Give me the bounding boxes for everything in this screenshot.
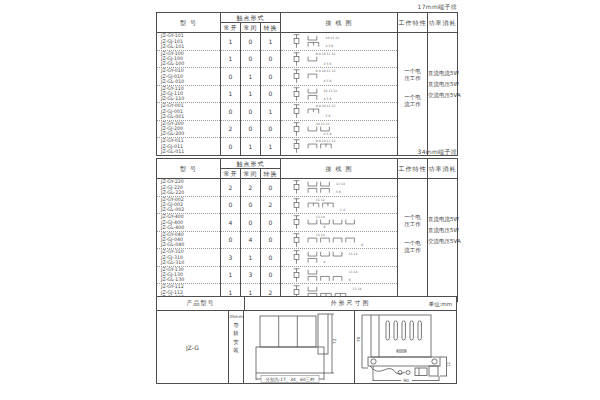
no-contact-symbol	[333, 220, 342, 224]
no-contact-header: 常开	[221, 169, 241, 179]
wiring-diagram-cell: 10 11 124 5 6	[281, 120, 398, 138]
no-contact-symbol	[308, 269, 317, 273]
co-contact-symbol	[308, 109, 319, 113]
wiring-diagram-cell: 10 11 124 5 6	[281, 33, 398, 51]
no-count-cell: 3	[221, 249, 241, 267]
no-contact-symbol	[321, 220, 330, 224]
model-numbers-cell: JZ-GY-040JZ-GJ-040JZ-GL-040	[157, 231, 221, 249]
nc-contact-symbol	[346, 238, 355, 242]
product-model-value: JZ-G	[157, 311, 229, 384]
model-number: JZ-GL-040	[157, 242, 220, 247]
model-column-header: 型 号	[157, 13, 221, 33]
no-contact-symbol	[333, 252, 342, 256]
pin-numbers-top: 13 14	[316, 216, 325, 220]
power-consumption-header: 功率消耗	[428, 159, 458, 179]
coil-symbol	[294, 109, 299, 114]
model-numbers-cell: JZ-GY-130JZ-GJ-130JZ-GL-130	[157, 266, 221, 284]
pin-numbers-top: 8 9 10 11 12	[316, 52, 336, 56]
wiring-diagram-svg: 13 146	[283, 214, 395, 230]
contact-form-header: 触点形式	[221, 159, 281, 169]
screw-hole	[371, 359, 376, 364]
label-slot	[397, 350, 406, 352]
model-numbers-cell: JZ-GY-400JZ-GJ-400JZ-GL-400	[157, 214, 221, 232]
nc-count-cell: 0	[241, 196, 261, 214]
pin-numbers-bottom: 4 5 6	[324, 132, 332, 136]
co-count-cell: 0	[261, 249, 281, 267]
power-line: 直流电流5W	[428, 70, 457, 76]
rail-mount-char: 装	[233, 347, 239, 353]
no-contact-symbol	[321, 126, 330, 130]
work-group-line: 压工作	[398, 75, 427, 82]
no-count-cell: 0	[221, 231, 241, 249]
wiring-diagram-svg: 13 146	[283, 249, 395, 265]
pin-numbers-top: 8 9 10 11 12	[316, 70, 336, 74]
pin-numbers-top: 10 11 12	[326, 36, 340, 40]
model-number: JZ-GL-101	[157, 44, 220, 49]
model-number: JZ-GL-220	[157, 190, 220, 195]
model-numbers-cell: JZ-GY-110JZ-GJ-110JZ-GL-110	[157, 85, 221, 103]
coil-symbol	[294, 185, 299, 190]
wiring-diagram-cell: 13 146	[281, 214, 398, 232]
no-contact-symbol	[321, 182, 330, 186]
working-characteristic-header: 工作特性	[398, 159, 428, 179]
model-numbers-cell: JZ-GY-310JZ-GJ-310JZ-GL-310	[157, 249, 221, 267]
working-characteristic-text: 一个电压工作一个电流工作	[398, 214, 427, 253]
work-group: 一个电流工作	[398, 240, 427, 253]
nc-contact-symbol	[308, 238, 317, 242]
wiring-diagram-svg: 10 11 124 5 6	[283, 121, 395, 137]
pin-numbers-bottom: 6	[349, 278, 351, 282]
no-contact-symbol	[308, 220, 317, 224]
nc-count-cell: 0	[241, 103, 261, 121]
rail-mount-char: 导	[233, 322, 239, 328]
model-column-header: 型 号	[157, 159, 221, 179]
no-count-cell: 0	[221, 196, 241, 214]
model-numbers-cell: JZ-GY-010JZ-GJ-010JZ-GL-010	[157, 68, 221, 86]
wiring-diagram-header: 接 线 图	[281, 13, 398, 33]
side-height-dim-label: 70	[356, 336, 361, 342]
co-contact-symbol	[308, 203, 319, 207]
coil-symbol	[294, 202, 299, 207]
co-count-cell: 0	[261, 85, 281, 103]
model-numbers-cell: JZ-GY-220JZ-GJ-220JZ-GL-220	[157, 179, 221, 197]
wiring-diagram-cell: 13 146	[281, 231, 398, 249]
terminal-block-side	[318, 314, 328, 354]
no-count-cell: 1	[221, 266, 241, 284]
nc-count-cell: 1	[241, 249, 261, 267]
contact-form-header: 触点形式	[221, 13, 281, 23]
front-view-drawing: 72 分别为:17、34、60三种	[244, 311, 354, 384]
pin-numbers-top: 13 14	[349, 270, 358, 274]
wiring-diagram-svg: 10 11 124 5 6	[283, 86, 395, 102]
pin-numbers-bottom: 4 5 6	[324, 79, 332, 83]
model-number: JZ-GL-200	[157, 131, 220, 136]
co-count-cell: 2	[261, 196, 281, 214]
model-number: JZ-GL-002	[157, 207, 220, 212]
pin-numbers-bottom: 6	[324, 225, 326, 229]
co-count-cell: 0	[261, 120, 281, 138]
outline-table-header: 产品型号 外形尺寸图 单位:mm	[157, 297, 456, 311]
rail-mount-note: 35mm 导 轨 安 装	[229, 311, 244, 384]
co-contact-header: 转换	[261, 169, 281, 179]
model-number: JZ-GL-400	[157, 225, 220, 230]
power-line: 直流电压5W	[428, 81, 457, 87]
power-consumption-cell: 直流电流5W直流电压5W交流电压5VA	[428, 179, 458, 302]
wiring-diagram-cell: 13 146	[281, 266, 398, 284]
pin-numbers-bottom: 5 6	[336, 191, 341, 195]
no-count-cell: 0	[221, 103, 241, 121]
pin-numbers-top: 13 14	[316, 233, 325, 237]
coil-symbol	[294, 74, 299, 79]
work-group: 一个电流工作	[398, 94, 427, 107]
model-number: JZ-GL-130	[157, 277, 220, 282]
model-numbers-cell: JZ-GY-100JZ-GJ-100JZ-GL-100	[157, 50, 221, 68]
product-model-header: 产品型号	[157, 297, 245, 310]
model-number: JZ-GL-310	[157, 260, 220, 265]
nc-count-cell: 0	[241, 50, 261, 68]
co-count-cell: 0	[261, 214, 281, 232]
pin-numbers-top: 10 11 12	[316, 122, 330, 126]
co-count-cell: 0	[261, 68, 281, 86]
nc-count-cell: 4	[241, 231, 261, 249]
power-line: 直流电流5W	[428, 216, 457, 222]
working-characteristic-header: 工作特性	[398, 13, 428, 33]
pin-numbers-top: 13 14	[353, 287, 362, 291]
work-group-line: 流工作	[398, 101, 427, 108]
outline-dimension-table: 产品型号 外形尺寸图 单位:mm JZ-G 35mm 导 轨 安 装	[156, 296, 457, 384]
wiring-diagram-cell: 13 145 6	[281, 179, 398, 197]
rail-size-text: 35mm	[229, 314, 243, 319]
work-group: 一个电压工作	[398, 68, 427, 81]
dimension-drawing-header: 外形尺寸图 单位:mm	[245, 297, 456, 310]
nc-count-cell: 0	[241, 33, 261, 51]
pin-numbers-bottom: 4 5 6	[324, 62, 332, 66]
front-height-dim-label: 72	[332, 338, 337, 344]
co-count-cell: 0	[261, 231, 281, 249]
no-contact-symbol	[308, 56, 317, 60]
side-clip-dim-label: 12	[446, 361, 451, 367]
wiring-diagram-cell: 8 9 10 11 125 6	[281, 103, 398, 121]
pin-numbers-top: 8 9 10 11 12	[316, 105, 336, 109]
no-contact-symbol	[346, 220, 355, 224]
nc-contact-symbol	[321, 189, 330, 193]
nc-contact-symbol	[333, 238, 342, 242]
power-consumption-header: 功率消耗	[428, 13, 458, 33]
rail-mount-char: 轨	[233, 330, 239, 336]
wiring-diagram-svg: 8 9 10 11 125 6	[283, 103, 395, 119]
side-width-dim-label: 90	[403, 378, 409, 383]
nc-count-cell: 2	[241, 179, 261, 197]
nc-count-cell: 1	[241, 68, 261, 86]
model-number: JZ-GL-010	[157, 79, 220, 84]
wiring-diagram-svg: 13 146	[283, 232, 395, 248]
nc-contact-symbol	[333, 276, 342, 280]
work-group-line: 流工作	[398, 247, 427, 254]
spec-row: JZ-GY-101JZ-GJ-101JZ-GL-10110110 11 124 …	[157, 33, 458, 51]
relay-base-flange	[256, 347, 324, 373]
spec-table-17mm: 型 号触点形式接 线 图工作特性功率消耗常开常闭转换JZ-GY-101JZ-GJ…	[156, 12, 458, 156]
wiring-diagram-cell: 10 11 124 5 6	[281, 85, 398, 103]
wiring-diagram-cell: 13 146	[281, 249, 398, 267]
power-consumption-text: 直流电流5W直流电压5W交流电压5VA	[428, 70, 457, 98]
terminal-size-label-17mm: 17mm端子排	[156, 3, 457, 12]
screw-hole	[432, 359, 437, 364]
power-consumption-cell: 直流电流5W直流电压5W交流电压5VA	[428, 33, 458, 156]
nc-contact-symbol	[321, 276, 330, 280]
unit-label: 单位:mm	[428, 300, 452, 307]
working-characteristic-text: 一个电压工作一个电流工作	[398, 68, 427, 107]
work-group-line: 压工作	[398, 221, 427, 228]
no-count-cell: 2	[221, 120, 241, 138]
coil-symbol	[294, 237, 299, 242]
side-view-drawing: 70 90 12	[355, 311, 454, 384]
pin-numbers-bottom: 6	[361, 243, 363, 247]
co-count-cell: 0	[261, 50, 281, 68]
no-count-cell: 1	[221, 85, 241, 103]
base-bar	[368, 357, 440, 366]
pin-numbers-bottom: 6	[324, 261, 326, 265]
pin-numbers-bottom: 5 6	[326, 114, 331, 118]
nc-count-cell: 1	[241, 85, 261, 103]
no-count-cell: 4	[221, 214, 241, 232]
coil-symbol	[294, 220, 299, 225]
no-count-cell: 1	[221, 33, 241, 51]
terminal-size-label-34mm: 34mm端子排	[156, 148, 457, 157]
coil-symbol	[294, 39, 299, 44]
model-number: JZ-GL-110	[157, 96, 220, 101]
relay-side-housing	[371, 315, 431, 357]
work-group: 一个电压工作	[398, 214, 427, 227]
pin-numbers-top: 13 14	[349, 252, 358, 256]
wiring-diagram-cell: 11 121 4	[281, 196, 398, 214]
power-line: 交流电压5VA	[428, 238, 457, 244]
outline-table-body: JZ-G 35mm 导 轨 安 装	[157, 311, 456, 384]
co-contact-header: 转换	[261, 23, 281, 33]
power-consumption-text: 直流电流5W直流电压5W交流电压5VA	[428, 216, 457, 244]
pin-numbers-bottom: 4 5 6	[326, 45, 334, 49]
nc-contact-header: 常闭	[241, 169, 261, 179]
no-count-cell: 2	[221, 179, 241, 197]
no-contact-symbol	[321, 252, 330, 256]
coil-symbol	[294, 290, 299, 295]
din-rail-clip	[370, 366, 438, 376]
model-numbers-cell: JZ-GY-200JZ-GJ-200JZ-GL-200	[157, 120, 221, 138]
co-count-cell: 0	[261, 266, 281, 284]
no-contact-symbol	[308, 182, 317, 186]
dimension-drawing-title: 外形尺寸图	[331, 299, 371, 308]
pin-numbers-bottom: 1 4	[340, 208, 345, 212]
coil-symbol	[294, 56, 299, 61]
nc-contact-symbol	[308, 189, 317, 193]
nc-contact-header: 常闭	[241, 23, 261, 33]
model-number: JZ-GL-100	[157, 61, 220, 66]
wiring-diagram-svg: 10 11 124 5 6	[283, 33, 395, 49]
rail-mount-char: 安	[233, 339, 239, 345]
nc-contact-symbol	[321, 238, 330, 242]
wiring-diagram-cell: 8 9 10 11 124 5 6	[281, 68, 398, 86]
pin-numbers-top: 11 12	[316, 198, 325, 202]
co-contact-symbol	[323, 203, 334, 207]
wiring-diagram-svg: 8 9 10 11 124 5 6	[283, 51, 395, 67]
no-contact-header: 常开	[221, 23, 241, 33]
no-contact-symbol	[308, 252, 317, 256]
working-characteristic-cell: 一个电压工作一个电流工作	[398, 179, 428, 302]
pin-numbers-top: 10 11 12	[324, 89, 338, 93]
co-count-cell: 1	[261, 103, 281, 121]
model-numbers-cell: JZ-GY-101JZ-GJ-101JZ-GL-101	[157, 33, 221, 51]
no-contact-symbol	[308, 287, 317, 291]
co-contact-symbol	[308, 43, 319, 47]
spec-table-34mm: 型 号触点形式接 线 图工作特性功率消耗常开常闭转换JZ-GY-220JZ-GJ…	[156, 158, 458, 302]
power-line: 交流电压5VA	[428, 92, 457, 98]
nc-contact-symbol	[308, 95, 317, 99]
pin-numbers-bottom: 4 5 6	[324, 97, 332, 101]
pin-numbers-top: 8 9 10 11 12	[316, 140, 336, 144]
nc-count-cell: 3	[241, 266, 261, 284]
wiring-diagram-svg: 13 146	[283, 267, 395, 283]
coil-symbol	[294, 126, 299, 131]
coil-symbol	[294, 91, 299, 96]
wiring-diagram-svg: 8 9 10 11 124 5 6	[283, 68, 395, 84]
nc-count-cell: 0	[241, 120, 261, 138]
model-numbers-cell: JZ-GY-001JZ-GJ-001JZ-GL-001	[157, 103, 221, 121]
model-number: JZ-GL-001	[157, 114, 220, 119]
co-count-cell: 0	[261, 179, 281, 197]
relay-top-housing	[260, 316, 316, 347]
no-count-cell: 1	[221, 50, 241, 68]
wiring-diagram-svg: 13 145 6	[283, 179, 395, 195]
wiring-diagram-svg: 11 121 4	[283, 197, 395, 213]
datasheet-page: 17mm端子排 型 号触点形式接 线 图工作特性功率消耗常开常闭转换JZ-GY-…	[0, 0, 600, 400]
wiring-diagram-cell: 8 9 10 11 124 5 6	[281, 50, 398, 68]
power-line: 直流电压5W	[428, 227, 457, 233]
side-view-cell: 70 90 12	[355, 311, 456, 384]
no-contact-symbol	[308, 88, 317, 92]
working-characteristic-cell: 一个电压工作一个电流工作	[398, 33, 428, 156]
pin-numbers-top: 13 14	[336, 182, 345, 186]
no-contact-symbol	[308, 36, 317, 40]
wiring-diagram-header: 接 线 图	[281, 159, 398, 179]
ventilation-slots	[386, 321, 421, 340]
no-contact-symbol	[308, 126, 317, 130]
front-view-cell: 72 分别为:17、34、60三种	[244, 311, 355, 384]
spec-row: JZ-GY-220JZ-GJ-220JZ-GL-22022013 145 6一个…	[157, 179, 458, 197]
coil-symbol	[294, 272, 299, 277]
no-count-cell: 0	[221, 68, 241, 86]
nc-contact-symbol	[308, 259, 317, 263]
model-numbers-cell: JZ-GY-002JZ-GJ-002JZ-GL-002	[157, 196, 221, 214]
coil-symbol	[294, 255, 299, 260]
nc-contact-symbol	[308, 276, 317, 280]
nc-count-cell: 0	[241, 214, 261, 232]
nc-contact-symbol	[308, 74, 317, 78]
co-count-cell: 1	[261, 33, 281, 51]
